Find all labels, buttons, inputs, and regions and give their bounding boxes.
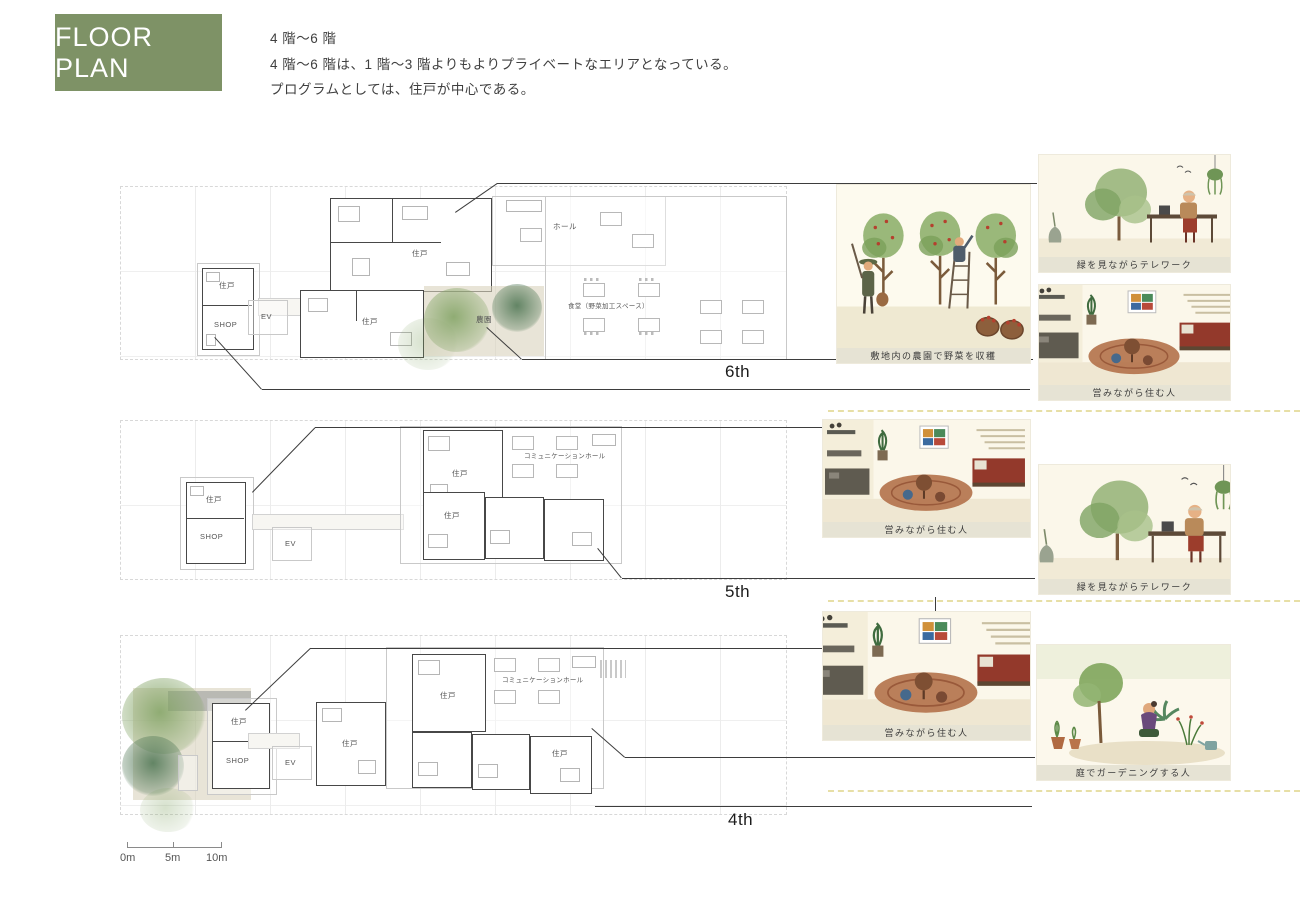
shop-label: SHOP xyxy=(214,320,237,329)
illustration-caption: 営みながら住む人 xyxy=(823,522,1030,537)
leader-line xyxy=(625,757,1035,758)
living-scene xyxy=(823,612,1030,725)
telework-scene xyxy=(1039,155,1230,257)
illustration-telework-1: 緑を見ながらテレワーク xyxy=(1039,155,1230,272)
illustration-gardening: 庭でガーデニングする人 xyxy=(1037,645,1230,780)
illustration-caption: 営みながら住む人 xyxy=(1039,385,1230,400)
living-scene xyxy=(823,420,1030,522)
row-separator xyxy=(828,790,1300,792)
scale-10m: 10m xyxy=(206,852,227,864)
illustration-caption: 敷地内の農園で野菜を収穫 xyxy=(837,348,1030,363)
elevator-5th: EV xyxy=(272,527,312,561)
illustration-telework-2: 緑を見ながらテレワーク xyxy=(1039,465,1230,594)
elevator-4th: EV xyxy=(272,746,312,780)
dining-label: 食堂（野菜加工スペース） xyxy=(568,300,649,310)
leader-line xyxy=(310,648,823,649)
illustration-caption: 庭でガーデニングする人 xyxy=(1037,765,1230,780)
leader-line xyxy=(622,578,1035,579)
illustration-caption: 緑を見ながらテレワーク xyxy=(1039,579,1230,594)
tree-blob xyxy=(122,736,184,796)
farm-label: 農園 xyxy=(476,314,492,325)
stair-4th xyxy=(600,660,626,678)
scale-5m: 5m xyxy=(165,852,180,864)
illustration-living-3: 営みながら住む人 xyxy=(823,612,1030,740)
leader-line xyxy=(497,183,1037,184)
illustration-living-2: 営みながら住む人 xyxy=(823,420,1030,537)
floor-label-6th: 6th xyxy=(725,362,750,382)
page-title: FLOOR PLAN xyxy=(55,22,222,84)
scale-0m: 0m xyxy=(120,852,135,864)
communication-hall-label: コミュニケーションホール xyxy=(524,450,605,460)
description-line-1: 4 階〜6 階は、1 階〜3 階よりもよりプライベートなエリアとなっている。 xyxy=(270,53,737,73)
telework-scene xyxy=(1039,465,1230,579)
row-separator xyxy=(828,600,1300,602)
floor-plan-title-block: FLOOR PLAN xyxy=(55,14,222,91)
tree-blob xyxy=(492,284,542,332)
floor-range-label: 4 階〜6 階 xyxy=(270,27,337,47)
floor-plan-sheet: FLOOR PLAN 4 階〜6 階 4 階〜6 階は、1 階〜3 階よりもより… xyxy=(0,0,1300,903)
gardening-scene xyxy=(1037,645,1230,765)
harvest-scene xyxy=(837,185,1030,348)
row-separator xyxy=(828,410,1300,412)
illustration-living-1: 営みながら住む人 xyxy=(1039,285,1230,400)
planting-bed xyxy=(178,755,198,791)
floor-label-5th: 5th xyxy=(725,582,750,602)
illustration-harvest: 敷地内の農園で野菜を収穫 xyxy=(837,185,1030,363)
living-scene xyxy=(1039,285,1230,385)
leader-line xyxy=(595,806,1032,807)
hall-label: ホール xyxy=(553,221,577,232)
illustration-caption: 緑を見ながらテレワーク xyxy=(1039,257,1230,272)
leader-line xyxy=(315,427,823,428)
leader-line xyxy=(262,389,1030,390)
illustration-caption: 営みながら住む人 xyxy=(823,725,1030,740)
floor-label-4th: 4th xyxy=(728,810,753,830)
description-line-2: プログラムとしては、住戸が中心である。 xyxy=(270,78,535,98)
elevator-6th: EV xyxy=(248,300,288,335)
unit-label: 住戸 xyxy=(219,280,235,291)
